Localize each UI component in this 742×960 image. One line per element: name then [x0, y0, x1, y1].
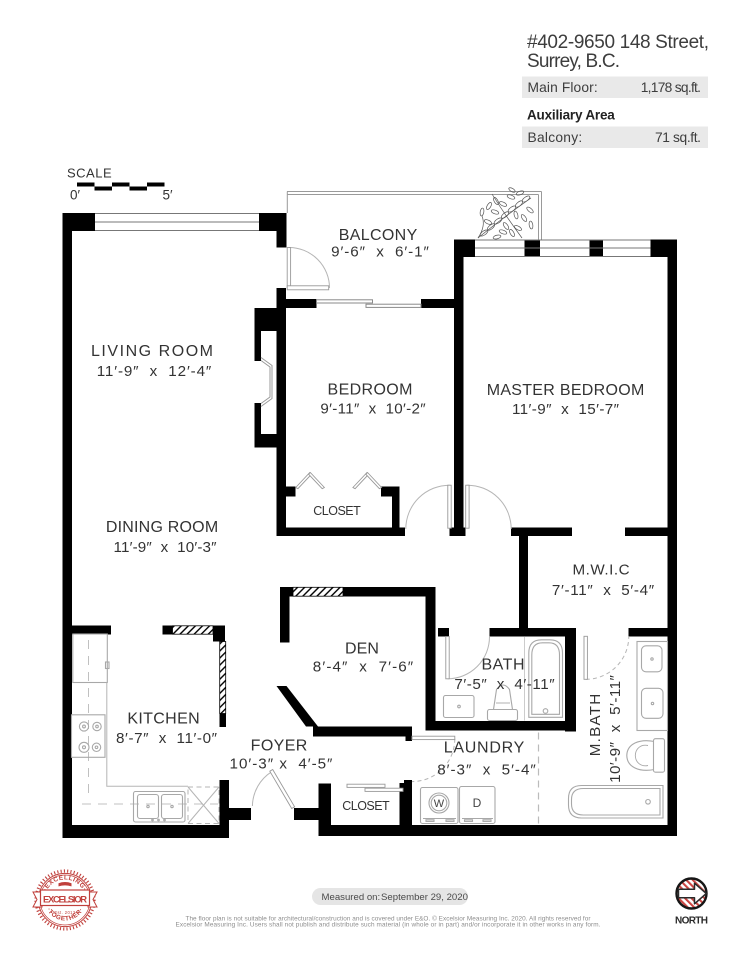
svg-text:1,178 sq.ft.: 1,178 sq.ft.	[641, 80, 701, 95]
svg-text:MASTER BEDROOM: MASTER BEDROOM	[487, 382, 645, 399]
svg-text:FOYER: FOYER	[251, 738, 308, 755]
svg-text:5′: 5′	[163, 188, 174, 203]
svg-text:D: D	[473, 796, 482, 810]
svg-text:71 sq.ft.: 71 sq.ft.	[655, 130, 701, 145]
svg-text:BALCONY: BALCONY	[339, 227, 418, 244]
svg-text:SCALE: SCALE	[67, 166, 112, 181]
svg-text:7′-11″ x 5′-4″: 7′-11″ x 5′-4″	[552, 582, 655, 599]
svg-text:M.W.I.C: M.W.I.C	[572, 562, 629, 579]
svg-text:LIVING ROOM: LIVING ROOM	[91, 343, 213, 360]
svg-text:September 29, 2020: September 29, 2020	[381, 892, 468, 903]
svg-text:CLOSET: CLOSET	[313, 504, 361, 518]
svg-text:KITCHEN: KITCHEN	[127, 711, 199, 728]
svg-text:M.BATH: M.BATH	[587, 694, 604, 756]
svg-text:11′-9″ x 12′-4″: 11′-9″ x 12′-4″	[97, 363, 212, 380]
svg-text:DEN: DEN	[345, 641, 379, 658]
svg-text:BEDROOM: BEDROOM	[328, 382, 413, 399]
svg-text:11′-9″ x 15′-7″: 11′-9″ x 15′-7″	[512, 401, 620, 418]
svg-text:8′-3″ x 5′-4″: 8′-3″ x 5′-4″	[437, 762, 536, 779]
svg-text:Excelsior Measuring Inc. Users: Excelsior Measuring Inc. Users shall not…	[176, 922, 601, 929]
svg-text:0′: 0′	[70, 188, 81, 203]
svg-text:NORTH: NORTH	[675, 916, 708, 927]
svg-text:Balcony:: Balcony:	[528, 130, 583, 145]
svg-text:LAUNDRY: LAUNDRY	[444, 740, 525, 757]
svg-text:DINING ROOM: DINING ROOM	[106, 519, 218, 536]
svg-text:7′-5″ x 4′-11″: 7′-5″ x 4′-11″	[454, 676, 555, 693]
svg-text:Measured on:: Measured on:	[322, 892, 381, 903]
svg-text:Auxiliary Area: Auxiliary Area	[527, 108, 615, 123]
svg-text:8′-7″ x 11′-0″: 8′-7″ x 11′-0″	[116, 730, 218, 747]
svg-text:10′-9″ x 5′-11″: 10′-9″ x 5′-11″	[607, 674, 624, 782]
svg-text:Surrey, B.C.: Surrey, B.C.	[527, 51, 620, 72]
svg-text:#402-9650 148 Street,: #402-9650 148 Street,	[527, 32, 709, 53]
svg-text:11′-9″ x 10′-3″: 11′-9″ x 10′-3″	[114, 539, 218, 556]
svg-text:CLOSET: CLOSET	[342, 799, 390, 813]
svg-text:W: W	[434, 798, 445, 810]
svg-text:EXCELSIOR: EXCELSIOR	[43, 894, 87, 905]
svg-text:8′-4″ x 7′-6″: 8′-4″ x 7′-6″	[313, 659, 414, 676]
svg-text:10′-3″ x 4′-5″: 10′-3″ x 4′-5″	[230, 756, 334, 773]
svg-text:BATH: BATH	[481, 657, 524, 674]
svg-text:• Est. 2012 •: • Est. 2012 •	[51, 910, 79, 915]
svg-text:9′-6″ x 6′-1″: 9′-6″ x 6′-1″	[331, 244, 429, 261]
svg-text:Main Floor:: Main Floor:	[528, 80, 598, 95]
svg-text:9′-11″ x 10′-2″: 9′-11″ x 10′-2″	[320, 401, 426, 418]
